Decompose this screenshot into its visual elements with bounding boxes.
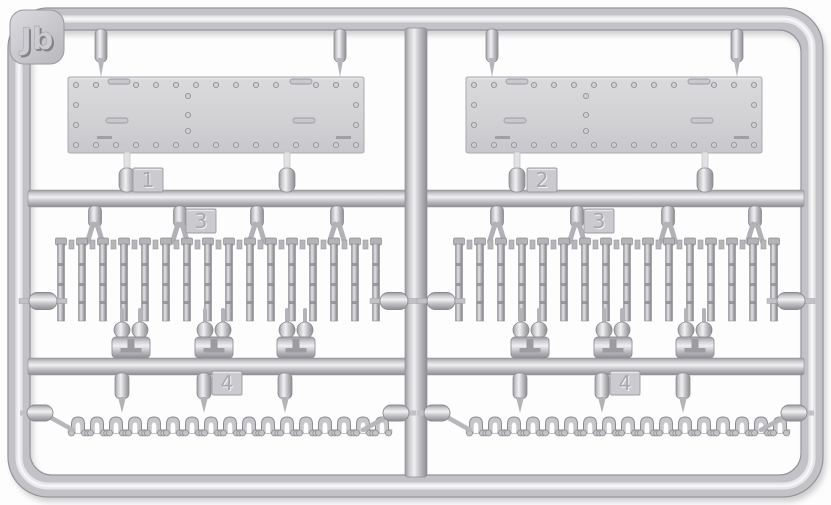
link-notch [58,283,65,286]
chain-arch-hole [626,423,631,434]
rivet [583,93,588,98]
link-sleeve-nub [237,240,242,249]
link-notch [582,263,589,266]
rivet [591,82,596,87]
link-notch [310,301,317,304]
rivet [153,82,158,87]
chain-arch-hole [740,423,745,434]
rivet [333,142,338,147]
link-notch [540,301,547,304]
teardrop-ball [197,322,213,338]
rivet [571,142,576,147]
sprue-photo: Jb Jb 112233334444 [0,0,831,505]
part-tag-3: 33 [186,209,216,234]
link-notch [687,283,694,286]
link-sleeve-nub [656,240,661,249]
link-sleeve-nub [90,240,95,249]
link-notch [247,301,254,304]
link-notch [58,263,65,266]
link-sleeve-nub [551,240,556,249]
part-tag-1: 11 [133,168,163,193]
link-notch [729,301,736,304]
chain-disc [752,430,758,436]
link-notch [226,301,233,304]
rivet [611,142,616,147]
gate-cylinder [676,373,690,399]
link-notch [121,301,128,304]
link-sleeve-nub [740,240,745,249]
gate-bulb [509,168,525,192]
link-sleeve-nub [321,240,326,249]
link-sleeve-nub [467,240,472,249]
rivet [73,82,78,87]
rivet [711,142,716,147]
panel-slot [504,118,526,123]
capsule-body [380,293,408,310]
panel-slot [688,79,710,84]
rivet [611,82,616,87]
link-notch [331,301,338,304]
chain-disc [240,430,246,436]
capsule-body [383,405,409,421]
chain-disc [164,430,170,436]
link-sleeve-nub [111,240,116,249]
link-shaft [729,244,736,321]
chain-arch-hole [380,423,385,434]
link-shaft [666,244,673,321]
teardrop-ball [297,322,313,338]
rivet [153,142,158,147]
gate-cylinder [197,373,211,399]
link-notch [163,263,170,266]
link-notch [205,283,212,286]
panel-slot [691,118,713,123]
rivet [531,142,536,147]
link-notch [100,283,107,286]
link-notch [771,263,778,266]
link-shaft [289,244,296,321]
link-notch [708,283,715,286]
panel-body [466,77,762,153]
teardrop-ball [678,322,694,338]
link-sleeve-nub [572,240,577,249]
link-notch [519,301,526,304]
link-shaft [247,244,254,321]
chain-arch-hole [588,423,593,434]
chain-arch-hole [569,423,574,434]
link-notch [100,263,107,266]
rivet [531,82,536,87]
link-sleeve-nub [761,240,766,249]
chain-arch-hole [323,423,328,434]
chain-arch-hole [228,423,233,434]
rivet [551,142,556,147]
gate-bulb [697,168,713,192]
rivet [551,82,556,87]
link-notch [729,263,736,266]
chain-disc [733,430,739,436]
chain-disc [259,430,265,436]
link-shaft [456,244,463,321]
chain-arch-hole [683,423,688,434]
link-shaft [184,244,191,321]
link-sleeve-nub [698,240,703,249]
rivet [193,142,198,147]
gate-cylinder [115,373,129,399]
chain-disc [657,430,663,436]
link-shaft [58,244,65,321]
rivet [711,82,716,87]
link-notch [582,283,589,286]
rivet [253,142,258,147]
rivet [233,82,238,87]
panel-dash [336,136,351,139]
link-shaft [498,244,505,321]
chain-arch-hole [721,423,726,434]
chain-arch-hole [190,423,195,434]
teardrop-ball [696,322,712,338]
chain-arch-hole [493,423,498,434]
link-notch [226,283,233,286]
link-shaft [79,244,86,321]
link-notch [771,283,778,286]
link-notch [519,263,526,266]
link-notch [666,263,673,266]
chain-disc [145,430,151,436]
link-shaft [624,244,631,321]
link-notch [645,283,652,286]
chain-disc [581,430,587,436]
rivet [671,82,676,87]
chain-arch-hole [95,423,100,434]
link-notch [519,283,526,286]
link-sleeve-nub [719,240,724,249]
gate-cylinder [513,373,527,399]
bracket-channel [286,348,307,353]
capsule-body [777,293,805,310]
rivet [353,102,358,107]
sprue-render: Jb Jb 112233334444 [0,0,831,505]
tag-digit: 2 [536,168,549,192]
chain-disc [676,430,682,436]
chain-arch-hole [152,423,157,434]
link-notch [163,301,170,304]
link-notch [79,301,86,304]
chain-disc [221,430,227,436]
link-notch [268,263,275,266]
link-notch [226,263,233,266]
link-shaft [582,244,589,321]
link-notch [142,283,149,286]
link-notch [498,283,505,286]
chain-arch-hole [645,423,650,434]
link-notch [289,301,296,304]
rivet [491,142,496,147]
link-sleeve-nub [363,240,368,249]
link-notch [456,283,463,286]
chain-arch-hole [133,423,138,434]
link-sleeve-nub [216,240,221,249]
chain-arch-hole [512,423,517,434]
rivet [671,142,676,147]
chain-arch-hole [304,423,309,434]
link-notch [477,301,484,304]
rivet [73,102,78,107]
chain-disc [505,430,511,436]
tag-digit: 4 [221,371,234,395]
link-notch [624,263,631,266]
rivet [93,82,98,87]
link-sleeve-nub [509,240,514,249]
chain-disc [486,430,492,436]
link-notch [645,263,652,266]
chain-disc [373,430,379,436]
link-shaft [310,244,317,321]
teardrop-ball [614,322,630,338]
panel-part-1 [68,77,364,153]
rivet [353,82,358,87]
teardrop-ball [531,322,547,338]
rivet [213,82,218,87]
link-notch [687,301,694,304]
chain-arch-hole [171,423,176,434]
link-notch [247,263,254,266]
link-notch [352,301,359,304]
chain-arch-hole [474,423,479,434]
link-notch [121,263,128,266]
capsule-body [27,405,53,421]
link-notch [666,301,673,304]
gate-cylinder [595,373,609,399]
link-sleeve-nub [69,240,74,249]
part-tag-4: 44 [610,371,640,396]
rivet [353,142,358,147]
panel-slot [106,118,128,123]
chain-arch-hole [285,423,290,434]
link-notch [289,283,296,286]
rivet [185,93,190,98]
chain-disc [714,430,720,436]
link-sleeve-nub [488,240,493,249]
link-notch [205,301,212,304]
rivet [213,142,218,147]
rivet [491,82,496,87]
rivet [651,142,656,147]
link-shaft [750,244,757,321]
rivet [691,142,696,147]
teardrop-ball [215,322,231,338]
link-notch [310,283,317,286]
chain-disc [297,430,303,436]
chain-arch-hole [76,423,81,434]
link-notch [373,283,380,286]
link-notch [477,263,484,266]
rivet [173,142,178,147]
chain-disc [771,430,777,436]
bracket-channel [685,348,706,353]
chain-disc [107,430,113,436]
rivet [731,142,736,147]
link-notch [498,263,505,266]
link-notch [121,283,128,286]
sprue-label-tab: Jb Jb [10,10,64,64]
panel-dash [734,136,749,139]
link-sleeve-nub [153,240,158,249]
chain-disc [600,430,606,436]
link-notch [561,301,568,304]
rivet [631,82,636,87]
teardrop-ball [596,322,612,338]
link-sleeve-nub [195,240,200,249]
link-shaft [477,244,484,321]
sprue-label: Jb [19,22,54,57]
rivet [571,82,576,87]
chain-disc [126,430,132,436]
bracket-channel [603,348,624,353]
link-notch [645,301,652,304]
link-shaft [708,244,715,321]
link-notch [708,301,715,304]
rivet [173,82,178,87]
link-sleeve-nub [635,240,640,249]
link-notch [268,283,275,286]
link-sleeve-nub [174,240,179,249]
gate-cylinder [278,373,292,399]
tag-digit: 4 [619,371,632,395]
rivet [731,82,736,87]
rivet [751,142,756,147]
chain-disc [202,430,208,436]
link-notch [750,263,757,266]
rivet [583,128,588,133]
link-sleeve-nub [530,240,535,249]
chain-arch-hole [607,423,612,434]
link-sleeve-nub [677,240,682,249]
link-sleeve-nub [342,240,347,249]
link-notch [498,301,505,304]
chain-arch-hole [531,423,536,434]
rivet [751,102,756,107]
link-shaft [771,244,778,321]
rivet [313,82,318,87]
rivet [751,82,756,87]
link-notch [310,263,317,266]
chain-disc [278,430,284,436]
rivet [353,122,358,127]
rivet [185,128,190,133]
rivet [93,142,98,147]
rivet [631,142,636,147]
link-notch [624,283,631,286]
link-notch [582,301,589,304]
chain-arch-hole [550,423,555,434]
link-notch [352,283,359,286]
chain-disc [524,430,530,436]
rivet [133,82,138,87]
link-notch [561,263,568,266]
gate-bulb [279,168,295,192]
link-notch [163,283,170,286]
link-sleeve-nub [132,240,137,249]
link-sleeve-nub [614,240,619,249]
rivet [471,82,476,87]
rivet [313,142,318,147]
teardrop-ball [114,322,130,338]
link-notch [603,263,610,266]
chain-disc [88,430,94,436]
rivet [273,142,278,147]
rivet [133,142,138,147]
link-notch [540,263,547,266]
bracket-channel [204,348,225,353]
link-notch [100,301,107,304]
link-notch [331,263,338,266]
panel-part-2 [466,77,762,153]
panel-dash [495,136,510,139]
link-notch [561,283,568,286]
link-shaft [331,244,338,321]
rivet [651,82,656,87]
rivet [471,142,476,147]
link-notch [79,263,86,266]
link-notch [268,301,275,304]
link-notch [729,283,736,286]
gate-cylinder [95,29,107,62]
rivet [751,122,756,127]
rivet [185,112,190,117]
link-shaft [561,244,568,321]
tag-digit: 1 [142,168,155,192]
link-notch [750,283,757,286]
link-notch [331,283,338,286]
chain-disc [183,430,189,436]
bracket-channel [520,348,541,353]
chain-disc [316,430,322,436]
rivet [471,122,476,127]
chain-disc [784,430,790,436]
link-notch [666,283,673,286]
chain-arch-hole [664,423,669,434]
chain-disc [386,430,392,436]
link-sleeve-nub [258,240,263,249]
chain-disc [562,430,568,436]
chain-disc [354,430,360,436]
link-notch [352,263,359,266]
link-notch [456,263,463,266]
part-tag-2: 22 [527,168,557,193]
link-notch [184,283,191,286]
link-notch [603,283,610,286]
gate-cylinder [334,29,346,62]
link-notch [687,263,694,266]
tag-digit: 3 [195,209,208,233]
link-shaft [373,244,380,321]
teardrop-ball [279,322,295,338]
link-notch [540,283,547,286]
link-notch [79,283,86,286]
rivet [193,82,198,87]
link-notch [142,263,149,266]
link-notch [142,301,149,304]
link-notch [624,301,631,304]
rivet [471,102,476,107]
chain-arch-hole [247,423,252,434]
rivet [73,142,78,147]
rivet [113,142,118,147]
rivet [591,142,596,147]
link-shaft [268,244,275,321]
gate-cylinder [731,29,743,62]
